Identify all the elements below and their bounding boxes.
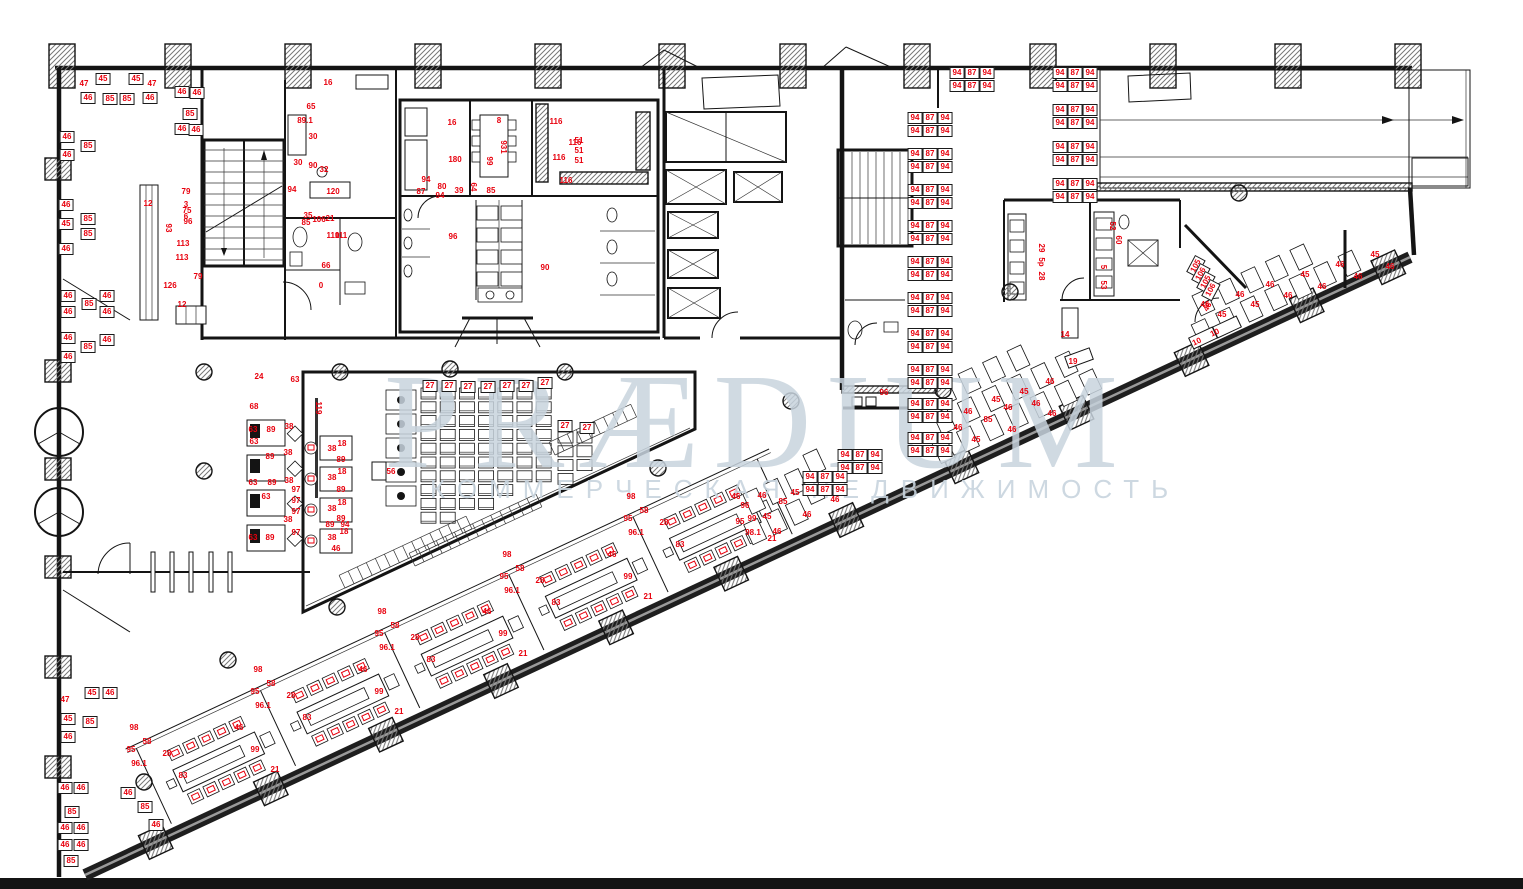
bottom-wall — [0, 878, 1523, 889]
top-wall — [49, 44, 1421, 88]
elevator-core — [664, 68, 938, 408]
wc-block — [400, 100, 658, 347]
ramp-strip — [1097, 70, 1470, 255]
floorplan-drawing — [0, 0, 1523, 889]
auditorium — [303, 372, 695, 612]
stairwell-1 — [204, 140, 284, 266]
floor-plan-page: PRÆDIUM КОММЕРЧЕСКАЯ НЕДВИЖИМОСТЬ 474545… — [0, 0, 1523, 889]
workstations-left — [247, 420, 352, 553]
